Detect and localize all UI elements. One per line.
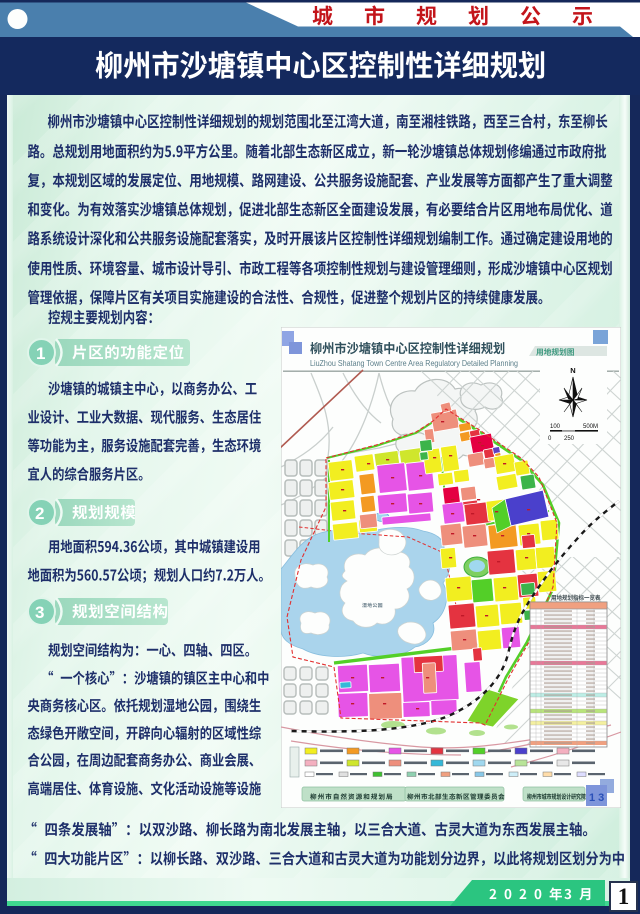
svg-text:LiuZhou Shatang Town Centre Ar: LiuZhou Shatang Town Centre Area Regulat… [310,358,518,368]
svg-text:250: 250 [564,436,575,442]
svg-text:500M: 500M [583,424,598,430]
svg-text:N: N [570,366,575,375]
svg-text:1 3: 1 3 [589,792,604,804]
svg-text:100: 100 [550,424,561,430]
